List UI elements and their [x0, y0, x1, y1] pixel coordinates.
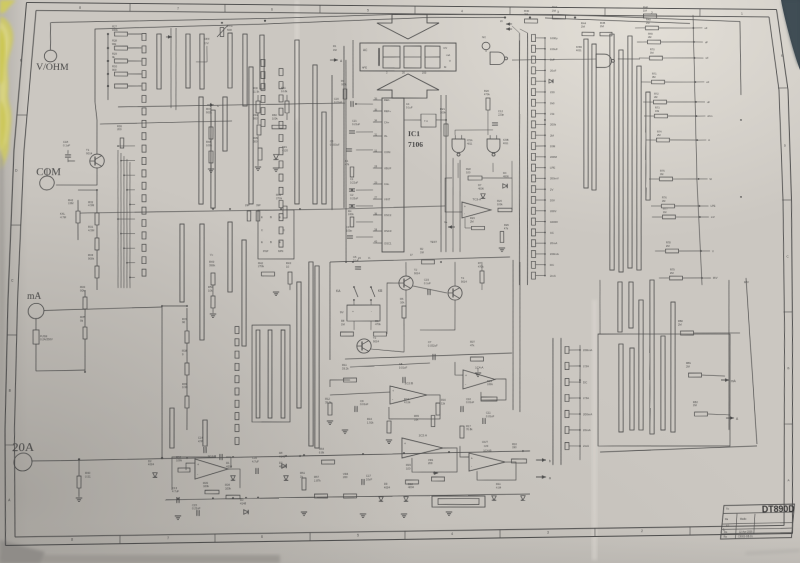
svg-text:TEST: TEST [430, 240, 437, 244]
svg-text:100k: 100k [206, 143, 213, 147]
svg-text:C20: C20 [334, 97, 339, 101]
svg-text:20A: 20A [12, 439, 35, 454]
svg-text:R3: R3 [341, 79, 345, 83]
svg-text:220: 220 [550, 90, 555, 94]
svg-text:160k: 160k [487, 382, 493, 386]
svg-text:200: 200 [117, 127, 122, 131]
svg-text:76.8k: 76.8k [466, 427, 473, 431]
svg-text:REF+: REF+ [384, 109, 391, 113]
svg-text:A: A [8, 498, 11, 502]
svg-text:0.51: 0.51 [85, 474, 91, 478]
svg-text:500: 500 [227, 28, 232, 32]
svg-text:-: - [392, 397, 393, 401]
svg-text:Madle: Madle [740, 518, 747, 521]
svg-text:11k: 11k [441, 401, 446, 405]
svg-text:REF-: REF- [384, 98, 390, 102]
svg-text:37: 37 [410, 254, 413, 257]
svg-text:2M: 2M [654, 95, 658, 99]
svg-text:mA: mA [446, 53, 450, 57]
svg-text:-: - [471, 464, 472, 468]
svg-text:C12: C12 [498, 109, 503, 113]
svg-text:+: + [464, 205, 466, 209]
svg-text:R49: R49 [648, 32, 653, 36]
svg-text:Fla: Fla [723, 535, 727, 538]
svg-text:4011: 4011 [576, 49, 582, 53]
svg-text:16k: 16k [655, 109, 660, 113]
svg-text:4.7uF: 4.7uF [172, 489, 180, 493]
svg-text:2M: 2M [657, 133, 661, 137]
svg-text:2M: 2M [524, 13, 529, 17]
svg-text:-: - [371, 309, 372, 313]
svg-text:2.5A: 2.5A [583, 364, 589, 368]
svg-text:R21: R21 [440, 107, 445, 111]
svg-text:0.22uF: 0.22uF [192, 506, 201, 510]
svg-text:0.2A/250V: 0.2A/250V [40, 337, 53, 341]
svg-text:2M: 2M [648, 35, 652, 39]
svg-text:-: - [464, 212, 465, 216]
svg-text:1000p: 1000p [550, 36, 558, 40]
svg-text:+: + [471, 456, 473, 460]
svg-text:2M: 2M [646, 21, 650, 25]
svg-text:M: M [709, 177, 712, 181]
svg-text:2mA: 2mA [583, 444, 589, 448]
svg-text:C21: C21 [352, 119, 357, 123]
svg-text:R20: R20 [484, 89, 489, 93]
svg-text:900: 900 [112, 68, 117, 72]
svg-text:270k: 270k [258, 264, 265, 268]
svg-text:20uF: 20uF [550, 69, 557, 73]
svg-text:0.01uF: 0.01uF [399, 365, 408, 369]
svg-text:100: 100 [406, 466, 411, 470]
svg-text:220uF: 220uF [550, 47, 558, 51]
svg-text:R76: R76 [662, 196, 667, 200]
svg-text:470k: 470k [484, 93, 490, 97]
svg-text:21k: 21k [550, 112, 555, 116]
svg-text:DC: DC [550, 263, 554, 267]
svg-text:39.2k: 39.2k [342, 366, 349, 370]
svg-text:R75: R75 [660, 169, 665, 173]
svg-text:R2: R2 [420, 247, 424, 251]
svg-text:R71: R71 [652, 72, 657, 76]
svg-text:7106: 7106 [408, 140, 423, 149]
svg-text:C: C [11, 278, 14, 282]
svg-text:R41: R41 [276, 193, 282, 197]
svg-text:900k: 900k [88, 256, 95, 260]
svg-text:200M: 200M [550, 155, 558, 159]
svg-text:D: D [15, 169, 18, 173]
svg-text:9014: 9014 [461, 279, 467, 283]
svg-text:KA: KA [336, 289, 341, 293]
svg-text:29P: 29P [245, 204, 250, 207]
svg-text:200V: 200V [550, 209, 557, 213]
svg-text:6.8k: 6.8k [319, 450, 325, 454]
svg-text:C5: C5 [330, 139, 334, 143]
svg-text:DT890D: DT890D [762, 504, 795, 515]
svg-text:M/V: M/V [744, 280, 749, 284]
svg-text:4.04: 4.04 [496, 485, 502, 489]
svg-text:AC: AC [363, 48, 368, 52]
svg-text:R26: R26 [504, 223, 509, 227]
svg-text:200: 200 [428, 461, 433, 465]
svg-text:0.032uF: 0.032uF [428, 343, 438, 347]
svg-text:A: A [787, 478, 789, 482]
svg-text:2M: 2M [666, 244, 670, 248]
svg-text:KB: KB [378, 289, 382, 293]
svg-text:K1: K1 [345, 159, 349, 163]
svg-text:9014: 9014 [86, 151, 93, 155]
svg-text:R23: R23 [470, 216, 475, 220]
svg-text:4.5M: 4.5M [88, 228, 95, 232]
svg-text:190: 190 [512, 445, 517, 449]
svg-text:Tb: Tb [726, 508, 730, 511]
svg-text:100k: 100k [497, 202, 503, 206]
svg-text:200: 200 [343, 475, 348, 479]
svg-text:VBUF: VBUF [384, 166, 392, 170]
svg-text:R1: R1 [333, 44, 337, 48]
svg-text:7: 7 [167, 536, 169, 540]
svg-text:1M: 1M [420, 250, 424, 254]
svg-text:39P: 39P [256, 204, 261, 207]
svg-text:Ra: Ra [725, 518, 729, 521]
svg-text:100k: 100k [348, 212, 354, 216]
svg-text:E: E [279, 240, 281, 244]
svg-text:COM: COM [384, 150, 391, 154]
svg-text:R72: R72 [654, 92, 659, 96]
svg-text:R77: R77 [663, 207, 668, 211]
svg-text:4.11k: 4.11k [404, 400, 411, 404]
svg-text:VINT: VINT [384, 197, 391, 201]
svg-text:IC1: IC1 [408, 129, 420, 138]
svg-text:B: B [270, 215, 272, 219]
svg-text:R29: R29 [112, 52, 118, 56]
svg-text:B: B [270, 240, 272, 244]
svg-text:7: 7 [177, 7, 179, 11]
svg-text:900k: 900k [112, 28, 119, 32]
svg-text:R48: R48 [646, 18, 651, 22]
svg-text:+: + [392, 389, 394, 393]
svg-text:390k: 390k [209, 263, 216, 267]
svg-text:mV: mV [711, 215, 715, 219]
svg-text:-: - [197, 472, 198, 476]
svg-text:KXL: KXL [60, 212, 66, 216]
svg-text:4004: 4004 [408, 485, 415, 489]
svg-text:4: 4 [451, 532, 453, 536]
svg-text:R70: R70 [650, 48, 655, 52]
svg-text:1M: 1M [341, 322, 345, 326]
svg-text:R73: R73 [655, 106, 660, 110]
svg-text:9014: 9014 [414, 271, 420, 275]
svg-text:0.22uF: 0.22uF [352, 122, 361, 126]
svg-text:2M: 2M [470, 219, 474, 223]
svg-text:3M: 3M [652, 75, 656, 79]
svg-text:4.5M: 4.5M [88, 203, 95, 207]
svg-text:R78: R78 [666, 241, 671, 245]
svg-text:2M: 2M [600, 25, 605, 29]
svg-text:V+: V+ [444, 220, 448, 224]
svg-text:4011: 4011 [503, 142, 509, 145]
svg-text:4004: 4004 [226, 464, 233, 468]
svg-text:uF: uF [705, 56, 708, 60]
svg-text:CAL: CAL [384, 182, 390, 186]
svg-text:CA+: CA+ [384, 120, 390, 124]
svg-text:20mA: 20mA [550, 241, 557, 245]
svg-text:3: 3 [557, 10, 559, 14]
svg-text:R24: R24 [497, 199, 502, 203]
svg-text:90k: 90k [80, 288, 85, 292]
svg-text:LPE: LPE [550, 166, 555, 170]
svg-text:C: C [786, 255, 789, 259]
svg-text:ohm: ohm [707, 114, 713, 118]
svg-text:10k: 10k [414, 417, 419, 421]
svg-text:V: V [712, 249, 714, 253]
svg-text:1000V: 1000V [550, 220, 558, 224]
svg-text:E: E [20, 59, 22, 63]
svg-text:200mA: 200mA [550, 252, 559, 256]
svg-text:OSC3: OSC3 [384, 229, 392, 233]
svg-text:A: A [340, 59, 343, 63]
svg-text:200mA: 200mA [583, 348, 592, 352]
svg-text:R4: R4 [348, 209, 352, 213]
svg-text:a: a [549, 476, 551, 480]
svg-text:1C2:A: 1C2:A [418, 433, 427, 437]
svg-text:uF: uF [706, 80, 709, 84]
svg-text:NC: NC [482, 35, 486, 39]
svg-text:R31: R31 [88, 225, 94, 229]
svg-text:M: M [444, 65, 447, 69]
svg-text:4011: 4011 [467, 142, 473, 145]
svg-text:+: + [352, 309, 354, 313]
svg-text:500: 500 [253, 116, 258, 120]
svg-text:200mA: 200mA [583, 412, 592, 416]
svg-text:b: b [549, 459, 551, 463]
svg-text:0.033uF: 0.033uF [330, 142, 340, 146]
svg-text:3M: 3M [650, 51, 654, 55]
svg-text:R42: R42 [68, 198, 74, 202]
svg-text:2M: 2M [552, 9, 557, 13]
svg-text:2k0: 2k0 [550, 101, 555, 105]
svg-text:300: 300 [253, 139, 258, 143]
svg-text:E: E [279, 215, 281, 219]
svg-text:8: 8 [71, 538, 73, 542]
svg-text:1M: 1M [663, 210, 667, 214]
svg-text:10k: 10k [208, 288, 213, 292]
svg-text:20mA: 20mA [583, 428, 591, 432]
svg-text:NPN: NPN [278, 250, 284, 253]
svg-text:200: 200 [422, 71, 427, 75]
svg-text:5: 5 [367, 9, 369, 13]
svg-text:0.22uF: 0.22uF [350, 196, 359, 200]
svg-text:2M: 2M [550, 133, 555, 137]
svg-text:270k: 270k [276, 196, 283, 200]
svg-text:100k: 100k [203, 484, 210, 488]
svg-text:47P: 47P [198, 439, 203, 443]
svg-text:1.87k: 1.87k [314, 478, 321, 482]
svg-text:R60: R60 [272, 113, 277, 117]
svg-text:20M: 20M [550, 144, 556, 148]
svg-text:B: B [8, 388, 10, 392]
svg-text:mV: mV [443, 46, 447, 50]
svg-text:7.4: 7.4 [424, 120, 428, 123]
svg-text:4004: 4004 [148, 462, 155, 466]
svg-text:0.1uF: 0.1uF [406, 105, 413, 109]
svg-text:220p: 220p [498, 112, 504, 116]
svg-text:6: 6 [261, 535, 263, 539]
svg-text:AC: AC [550, 231, 554, 235]
svg-text:-: - [465, 382, 466, 386]
svg-text:OSC2: OSC2 [384, 213, 392, 217]
svg-text:4.7uF: 4.7uF [252, 459, 259, 463]
svg-text:0.01uF: 0.01uF [486, 414, 495, 418]
svg-text:T2: T2 [414, 268, 418, 272]
svg-text:2.5A: 2.5A [583, 396, 589, 400]
svg-text:10: 10 [286, 264, 290, 268]
svg-text:IC5D: IC5D [576, 45, 582, 49]
svg-text:uF: uF [704, 26, 707, 30]
svg-text:0.01uF: 0.01uF [360, 402, 369, 406]
svg-text:D4: D4 [503, 171, 507, 175]
svg-text:mA: mA [731, 379, 737, 383]
svg-text:LPE: LPE [710, 204, 715, 208]
svg-text:2mA: 2mA [550, 274, 556, 278]
svg-text:E: E [781, 54, 783, 58]
svg-text:4006: 4006 [478, 186, 484, 190]
svg-text:100k: 100k [225, 486, 232, 490]
svg-text:13M: 13M [68, 201, 74, 205]
svg-text:2uF: 2uF [550, 58, 555, 62]
svg-text:R79: R79 [670, 267, 675, 271]
svg-text:E: E [261, 215, 263, 219]
svg-text:47k: 47k [470, 343, 475, 347]
svg-text:hFE: hFE [362, 66, 367, 70]
svg-text:+120: +120 [282, 148, 289, 152]
svg-text:+: + [465, 374, 467, 378]
svg-text:470k: 470k [375, 322, 381, 326]
svg-text:4148: 4148 [240, 501, 247, 505]
svg-text:C4: C4 [406, 102, 410, 106]
svg-text:R27: R27 [112, 25, 118, 29]
svg-text:0.22uF: 0.22uF [350, 180, 359, 184]
svg-text:100k: 100k [176, 458, 183, 462]
svg-text:100k: 100k [341, 82, 347, 86]
svg-text:V: V [449, 59, 451, 63]
svg-text:E: E [261, 240, 263, 244]
svg-text:900k: 900k [206, 110, 213, 114]
svg-text:2M: 2M [581, 25, 586, 29]
svg-text:0.22uF: 0.22uF [334, 100, 343, 104]
svg-text:100k: 100k [272, 116, 278, 120]
svg-text:10uF: 10uF [353, 258, 359, 262]
svg-text:OUT: OUT [482, 440, 488, 444]
svg-text:TC3-A: TC3-A [472, 197, 481, 201]
svg-text:mA: mA [27, 291, 42, 301]
svg-text:R28: R28 [112, 39, 118, 43]
svg-text:1C4:A: 1C4:A [475, 365, 483, 369]
svg-text:C2: C2 [350, 193, 354, 197]
svg-text:R61: R61 [281, 86, 286, 90]
svg-text:6: 6 [271, 8, 273, 12]
svg-text:100k: 100k [440, 110, 446, 114]
svg-text:4004: 4004 [279, 464, 286, 468]
svg-text:V-: V- [368, 256, 371, 260]
svg-text:9V: 9V [340, 310, 344, 314]
svg-text:1: 1 [741, 12, 743, 16]
svg-text:2V: 2V [550, 187, 554, 191]
svg-text:C1: C1 [350, 177, 354, 181]
svg-text:C: C [261, 228, 263, 232]
svg-text:R74: R74 [657, 130, 662, 134]
svg-text:2M: 2M [660, 172, 664, 176]
svg-text:100: 100 [466, 170, 471, 174]
svg-text:200mV: 200mV [550, 177, 559, 181]
svg-text:1M: 1M [643, 9, 648, 13]
svg-text:1.91k: 1.91k [367, 420, 374, 424]
svg-text:39.2k: 39.2k [325, 400, 332, 404]
svg-text:+: + [404, 442, 406, 446]
svg-text:200k: 200k [550, 123, 557, 127]
svg-text:1C2:B: 1C2:B [405, 381, 414, 385]
svg-text:1M: 1M [333, 48, 337, 52]
svg-text:8: 8 [79, 6, 81, 10]
svg-text:C/V: C/V [204, 41, 209, 45]
svg-text:47k: 47k [504, 226, 509, 230]
svg-text:3: 3 [547, 531, 549, 535]
svg-text:C9002-GB.01: C9002-GB.01 [738, 535, 753, 538]
svg-text:2: 2 [651, 11, 653, 15]
svg-text:12-Apr-2008: 12-Apr-2008 [739, 531, 753, 534]
svg-text:uF: uF [705, 40, 708, 44]
svg-text:OSC1: OSC1 [384, 241, 392, 245]
svg-text:470k: 470k [478, 264, 484, 268]
svg-text:R32: R32 [88, 200, 94, 204]
svg-text:DC: DC [583, 380, 587, 384]
svg-text:uF: uF [707, 100, 710, 104]
svg-text:C: C [217, 104, 220, 108]
svg-text:4.7M: 4.7M [60, 215, 66, 219]
svg-text:PNP: PNP [263, 250, 269, 253]
svg-text:B: B [787, 366, 789, 370]
svg-text:9014: 9014 [373, 339, 379, 343]
svg-text:M/V: M/V [713, 276, 718, 280]
svg-text:D: D [784, 144, 787, 148]
svg-text:A: A [736, 417, 739, 421]
svg-text:10k: 10k [400, 300, 405, 304]
svg-text:2M: 2M [662, 199, 666, 203]
svg-text:16.8k: 16.8k [281, 89, 288, 93]
svg-text:+: + [197, 463, 199, 467]
svg-text:90k: 90k [112, 42, 117, 46]
svg-text:9k: 9k [112, 55, 116, 59]
svg-text:0.1uF: 0.1uF [63, 143, 71, 147]
svg-text:IN-: IN- [384, 134, 388, 138]
svg-text:A: A [708, 138, 710, 142]
svg-text:90: 90 [182, 320, 186, 324]
svg-text:C: C [283, 228, 285, 232]
svg-text:2M: 2M [670, 271, 674, 275]
svg-text:V+: V+ [210, 253, 214, 257]
svg-text:20: 20 [500, 20, 503, 23]
svg-text:11.5k: 11.5k [253, 89, 260, 93]
svg-text:0.1uF: 0.1uF [424, 281, 431, 285]
svg-text:4004: 4004 [384, 485, 391, 489]
svg-text:0.01uF: 0.01uF [466, 400, 475, 404]
svg-text:2: 2 [641, 529, 643, 533]
svg-text:20V: 20V [550, 198, 555, 202]
svg-text:100p: 100p [346, 228, 352, 232]
svg-text:4: 4 [461, 9, 463, 13]
svg-text:10uF: 10uF [366, 477, 373, 481]
svg-text:V/OHM: V/OHM [36, 63, 69, 73]
svg-text:5: 5 [357, 533, 359, 537]
